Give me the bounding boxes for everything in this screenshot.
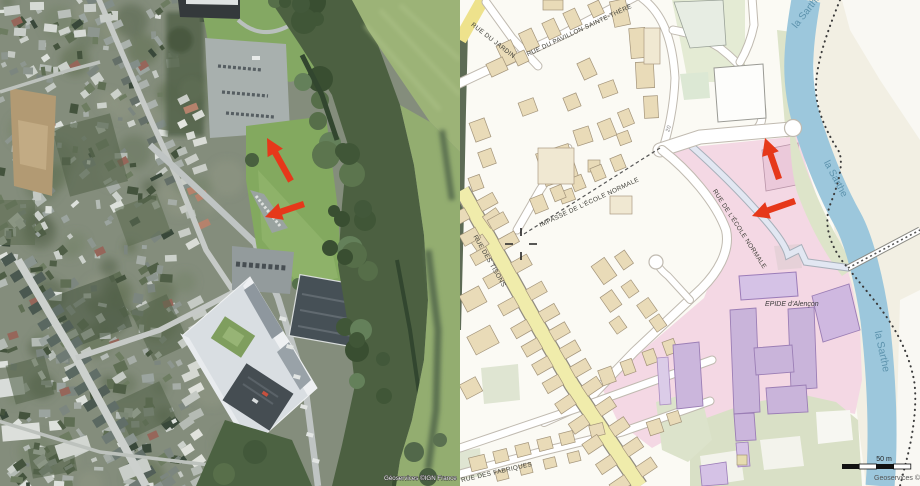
svg-text:Geoservices © IG: Geoservices © IG — [874, 474, 920, 482]
svg-text:EPIDE d’Alençon: EPIDE d’Alençon — [765, 301, 819, 308]
svg-text:Géoservices ©IGN France: Géoservices ©IGN France — [384, 475, 457, 482]
svg-text:50 m: 50 m — [876, 456, 892, 463]
